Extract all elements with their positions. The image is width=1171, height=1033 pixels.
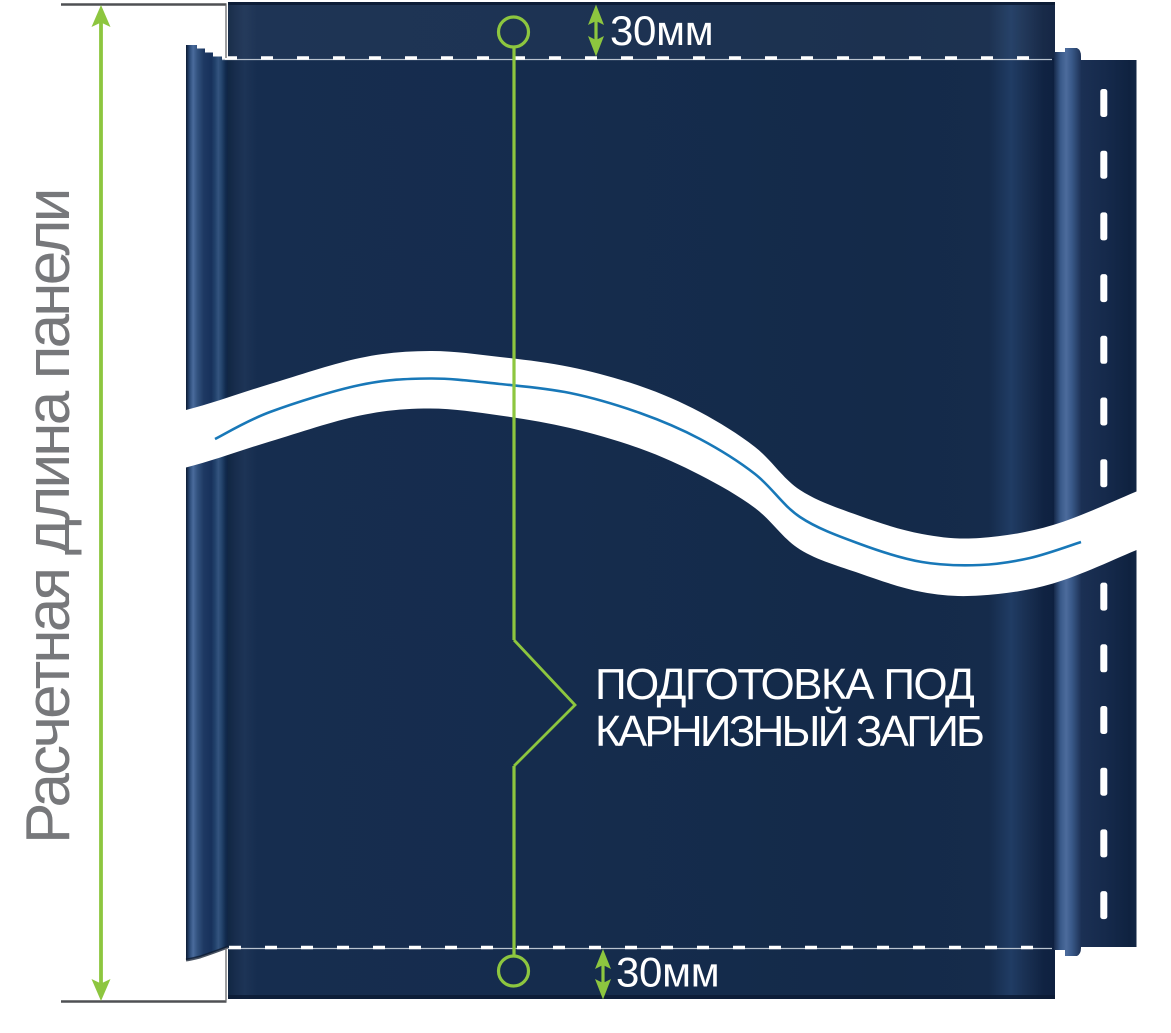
svg-text:30мм: 30мм bbox=[616, 949, 719, 996]
svg-text:30мм: 30мм bbox=[610, 7, 713, 54]
svg-text:Расчетная длина панели: Расчетная длина панели bbox=[14, 190, 83, 844]
svg-text:КАРНИЗНЫЙ ЗАГИБ: КАРНИЗНЫЙ ЗАГИБ bbox=[595, 705, 983, 756]
svg-text:ПОДГОТОВКА ПОД: ПОДГОТОВКА ПОД bbox=[595, 660, 974, 709]
